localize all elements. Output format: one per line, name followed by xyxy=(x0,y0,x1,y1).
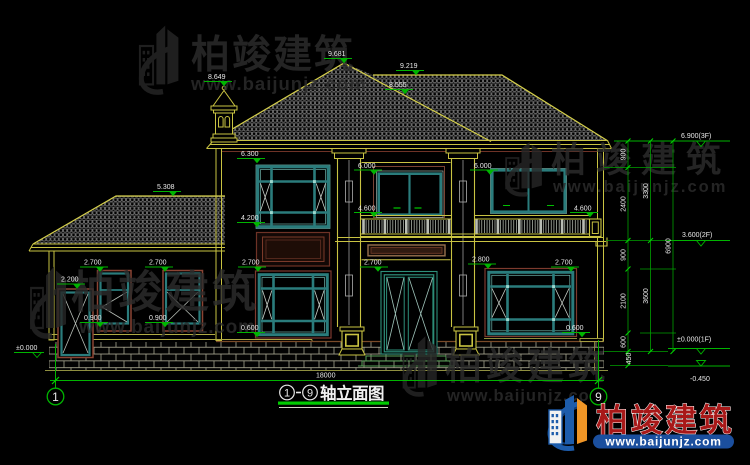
svg-text:4.200: 4.200 xyxy=(241,215,259,222)
svg-text:6.900(3F): 6.900(3F) xyxy=(681,133,711,140)
svg-text:2.700: 2.700 xyxy=(555,260,573,267)
svg-text:柏竣建筑: 柏竣建筑 xyxy=(596,402,734,438)
svg-text:0.900: 0.900 xyxy=(84,315,102,322)
svg-text:2.200: 2.200 xyxy=(61,277,79,284)
svg-text:柏竣建筑: 柏竣建筑 xyxy=(551,140,731,180)
svg-text:3.600(2F): 3.600(2F) xyxy=(682,232,712,239)
svg-text:2100: 2100 xyxy=(621,293,628,309)
svg-text:-0.450: -0.450 xyxy=(690,376,710,383)
svg-text:18000: 18000 xyxy=(316,373,336,380)
svg-text:900: 900 xyxy=(621,249,628,261)
svg-text:0.600: 0.600 xyxy=(241,325,259,332)
svg-text:柏竣建筑: 柏竣建筑 xyxy=(71,268,259,317)
svg-text:±0.000: ±0.000 xyxy=(16,345,37,352)
svg-text:8.555: 8.555 xyxy=(389,82,407,89)
svg-text:www.baijunjz.com: www.baijunjz.com xyxy=(78,317,256,338)
svg-text:2.700: 2.700 xyxy=(242,260,260,267)
svg-text:2.700: 2.700 xyxy=(149,260,167,267)
svg-text:6.000: 6.000 xyxy=(358,163,376,170)
svg-text:www.baijunjz.com: www.baijunjz.com xyxy=(604,435,721,449)
svg-text:1: 1 xyxy=(52,390,59,404)
svg-text:3600: 3600 xyxy=(643,288,650,304)
svg-text:±0.000(1F): ±0.000(1F) xyxy=(677,337,711,344)
svg-text:2.800: 2.800 xyxy=(472,257,490,264)
svg-text:9: 9 xyxy=(307,388,313,400)
svg-text:0.900: 0.900 xyxy=(149,315,167,322)
svg-text:www.baijunjz.com: www.baijunjz.com xyxy=(552,178,727,196)
svg-text:4.600: 4.600 xyxy=(574,206,592,213)
svg-text:6900: 6900 xyxy=(666,238,673,254)
svg-text:3300: 3300 xyxy=(643,183,650,199)
svg-text:600: 600 xyxy=(621,336,628,348)
svg-text:6.300: 6.300 xyxy=(241,151,259,158)
svg-text:0.600: 0.600 xyxy=(566,325,584,332)
svg-text:5.308: 5.308 xyxy=(157,184,175,191)
svg-text:2.700: 2.700 xyxy=(84,260,102,267)
svg-text:轴立面图: 轴立面图 xyxy=(320,383,384,403)
svg-text:6.000: 6.000 xyxy=(474,163,492,170)
svg-text:450: 450 xyxy=(626,353,633,365)
svg-text:4.600: 4.600 xyxy=(358,206,376,213)
svg-text:2400: 2400 xyxy=(621,196,628,212)
svg-text:1: 1 xyxy=(284,388,290,400)
svg-text:8.649: 8.649 xyxy=(208,74,226,81)
svg-text:9.219: 9.219 xyxy=(400,63,418,70)
svg-text:2.700: 2.700 xyxy=(364,260,382,267)
svg-text:9.681: 9.681 xyxy=(328,51,346,58)
svg-text:900: 900 xyxy=(621,149,628,161)
